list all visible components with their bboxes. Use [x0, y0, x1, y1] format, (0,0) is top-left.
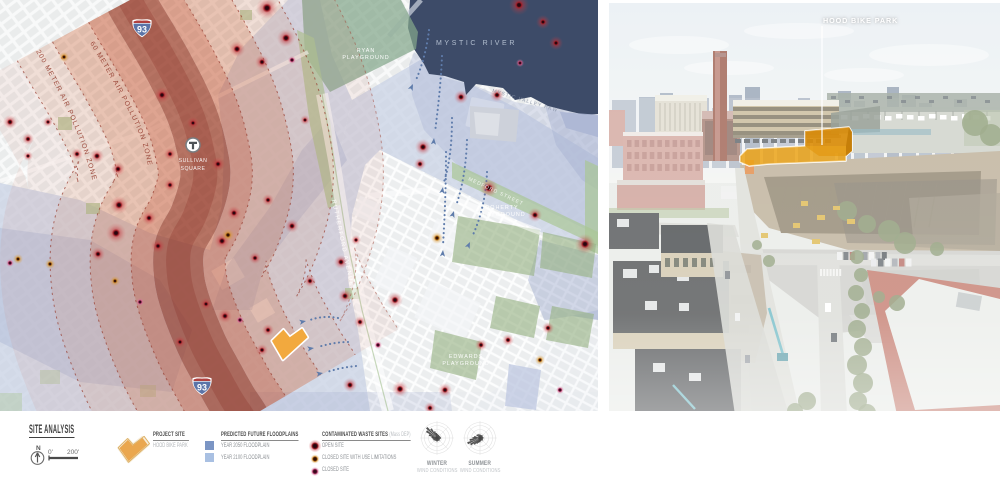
svg-text:EDWARDS: EDWARDS: [449, 354, 483, 360]
svg-text:SQUARE: SQUARE: [181, 166, 206, 172]
svg-text:0': 0': [48, 449, 53, 456]
svg-text:PLAYGROUND: PLAYGROUND: [342, 55, 389, 61]
svg-text:RYAN: RYAN: [357, 48, 375, 54]
svg-text:93: 93: [197, 382, 207, 392]
svg-text:DOHERTY: DOHERTY: [485, 205, 518, 211]
svg-text:MYSTIC RIVER: MYSTIC RIVER: [436, 40, 517, 47]
svg-text:N: N: [36, 445, 41, 452]
svg-text:SULLIVAN: SULLIVAN: [179, 158, 208, 164]
svg-text:HOOD BIKE PARK: HOOD BIKE PARK: [823, 16, 898, 25]
svg-text:200': 200': [67, 449, 79, 456]
svg-text:PLAYGROUND: PLAYGROUND: [442, 361, 489, 367]
svg-text:93: 93: [137, 24, 147, 34]
svg-text:PLAYGROUND: PLAYGROUND: [478, 212, 525, 218]
